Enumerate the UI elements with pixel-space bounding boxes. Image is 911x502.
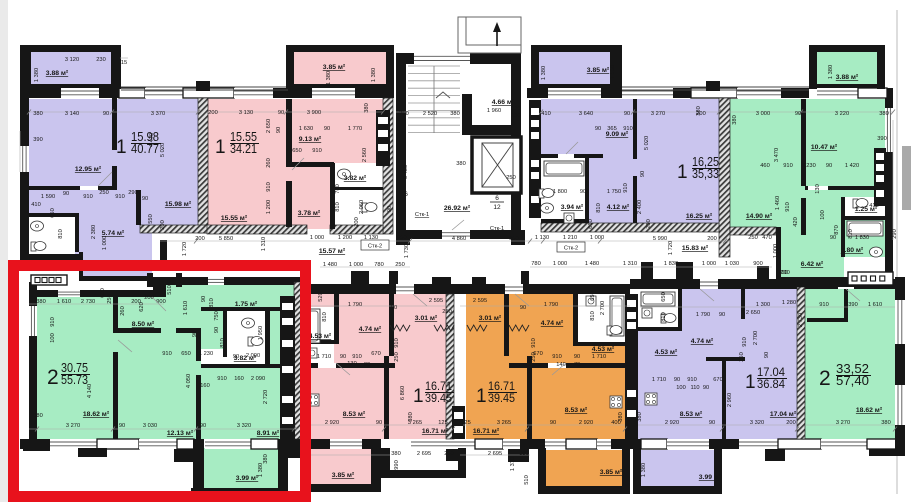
svg-text:810: 810 — [335, 202, 341, 212]
svg-text:4 470: 4 470 — [149, 133, 155, 147]
svg-text:1 830: 1 830 — [855, 235, 869, 241]
svg-text:910: 910 — [115, 194, 125, 200]
svg-text:90: 90 — [63, 191, 69, 197]
svg-text:200: 200 — [144, 295, 154, 301]
svg-text:3 640: 3 640 — [579, 111, 593, 117]
svg-text:200: 200 — [354, 217, 360, 227]
svg-text:260: 260 — [120, 306, 126, 316]
svg-text:90: 90 — [703, 385, 709, 391]
svg-text:4 140: 4 140 — [87, 384, 93, 398]
svg-text:3 470: 3 470 — [774, 148, 780, 162]
svg-text:90: 90 — [520, 305, 526, 311]
svg-text:3 900: 3 900 — [307, 110, 321, 116]
svg-text:900: 900 — [753, 261, 763, 267]
svg-text:100: 100 — [820, 210, 826, 220]
svg-text:39.45: 39.45 — [425, 391, 452, 405]
svg-text:1 950: 1 950 — [258, 326, 264, 340]
svg-text:290: 290 — [892, 229, 898, 239]
svg-text:380: 380 — [450, 111, 460, 117]
svg-text:380: 380 — [408, 412, 414, 422]
svg-text:230: 230 — [96, 57, 106, 63]
svg-text:200: 200 — [707, 236, 717, 242]
svg-text:1: 1 — [476, 386, 487, 407]
svg-text:870: 870 — [834, 225, 840, 235]
svg-text:1 480: 1 480 — [323, 262, 337, 268]
svg-text:1 380: 1 380 — [371, 68, 377, 82]
svg-text:8.91 м²: 8.91 м² — [257, 430, 280, 437]
svg-text:2 730: 2 730 — [81, 299, 95, 305]
svg-text:250: 250 — [531, 352, 537, 362]
svg-text:520: 520 — [318, 292, 324, 302]
svg-text:4.53 м²: 4.53 м² — [309, 333, 332, 340]
svg-text:750: 750 — [214, 311, 220, 321]
svg-text:5 850: 5 850 — [219, 236, 233, 242]
svg-text:1 800: 1 800 — [553, 189, 567, 195]
svg-text:3.85 м²: 3.85 м² — [600, 469, 623, 476]
svg-text:1 380: 1 380 — [641, 463, 647, 477]
svg-text:3 120: 3 120 — [65, 57, 79, 63]
svg-text:200: 200 — [160, 220, 166, 230]
svg-text:125: 125 — [461, 420, 471, 426]
svg-text:810: 810 — [209, 298, 215, 308]
svg-text:1 960: 1 960 — [487, 108, 501, 114]
svg-text:90: 90 — [826, 163, 832, 169]
svg-text:910: 910 — [623, 126, 633, 132]
svg-text:780: 780 — [531, 261, 541, 267]
svg-text:260: 260 — [266, 158, 272, 168]
svg-text:230: 230 — [806, 163, 816, 169]
svg-text:910: 910 — [687, 377, 697, 383]
svg-text:250: 250 — [397, 235, 407, 241]
svg-text:35,33: 35,33 — [692, 167, 719, 181]
svg-text:290: 290 — [128, 190, 138, 196]
svg-text:18.62 м²: 18.62 м² — [83, 411, 110, 418]
svg-text:1 130: 1 130 — [364, 235, 378, 241]
svg-text:380: 380 — [519, 451, 529, 457]
svg-text:1 000: 1 000 — [773, 244, 779, 258]
svg-text:380: 380 — [33, 111, 43, 117]
svg-text:650: 650 — [50, 208, 56, 218]
svg-text:3.01 м²: 3.01 м² — [479, 315, 502, 322]
svg-text:3.85 м²: 3.85 м² — [323, 64, 346, 71]
svg-text:90: 90 — [764, 352, 770, 358]
svg-text:18.62 м²: 18.62 м² — [856, 407, 883, 414]
svg-text:90: 90 — [103, 111, 109, 117]
svg-text:1 030: 1 030 — [725, 261, 739, 267]
svg-text:365: 365 — [607, 126, 617, 132]
svg-text:910: 910 — [83, 194, 93, 200]
svg-text:2 000: 2 000 — [246, 353, 260, 359]
svg-text:420: 420 — [793, 217, 799, 227]
svg-text:6.42 м²: 6.42 м² — [801, 261, 824, 268]
svg-text:3.94 м²: 3.94 м² — [561, 204, 584, 211]
svg-text:1 000: 1 000 — [349, 262, 363, 268]
svg-text:1 000: 1 000 — [102, 236, 108, 250]
svg-text:1 790: 1 790 — [348, 302, 362, 308]
svg-text:90: 90 — [376, 420, 382, 426]
svg-text:10.47 м²: 10.47 м² — [811, 144, 838, 151]
svg-text:2 695: 2 695 — [488, 451, 502, 457]
svg-text:3.88 м²: 3.88 м² — [836, 74, 859, 81]
svg-text:390: 390 — [848, 302, 858, 308]
svg-text:12.95 м²: 12.95 м² — [75, 166, 102, 173]
svg-text:1 300: 1 300 — [756, 302, 770, 308]
svg-text:410: 410 — [31, 202, 41, 208]
svg-text:4.53 м²: 4.53 м² — [655, 349, 678, 356]
svg-text:1 200: 1 200 — [338, 235, 352, 241]
svg-text:1 000: 1 000 — [310, 235, 324, 241]
svg-text:910: 910 — [531, 338, 537, 348]
svg-text:16.25 м²: 16.25 м² — [686, 213, 713, 220]
svg-text:650: 650 — [181, 351, 191, 357]
svg-text:650: 650 — [661, 292, 667, 302]
svg-text:9.09 м²: 9.09 м² — [606, 131, 629, 138]
svg-text:1 420: 1 420 — [845, 163, 859, 169]
svg-text:1: 1 — [413, 386, 424, 407]
svg-text:670: 670 — [713, 377, 723, 383]
svg-text:90: 90 — [278, 110, 284, 116]
svg-text:1 380: 1 380 — [828, 65, 834, 79]
svg-text:380: 380 — [881, 420, 891, 426]
svg-text:90: 90 — [719, 312, 725, 318]
svg-text:910: 910 — [819, 302, 829, 308]
svg-text:90: 90 — [550, 420, 556, 426]
svg-text:250: 250 — [395, 262, 405, 268]
svg-text:90: 90 — [192, 331, 198, 337]
svg-text:1 610: 1 610 — [868, 302, 882, 308]
svg-text:8.50 м²: 8.50 м² — [132, 321, 155, 328]
svg-text:910: 910 — [785, 202, 791, 212]
svg-text:1: 1 — [677, 162, 688, 183]
svg-text:125: 125 — [438, 420, 448, 426]
svg-text:510: 510 — [167, 285, 173, 295]
svg-text:380: 380 — [637, 412, 643, 422]
svg-text:200: 200 — [646, 219, 652, 229]
svg-text:1 710: 1 710 — [317, 354, 331, 360]
svg-text:1 590: 1 590 — [41, 194, 55, 200]
svg-text:4 050: 4 050 — [186, 374, 192, 388]
svg-text:3.85 м²: 3.85 м² — [587, 67, 610, 74]
svg-text:110: 110 — [690, 385, 699, 391]
svg-text:39.45: 39.45 — [488, 391, 515, 405]
svg-text:1 000: 1 000 — [553, 261, 567, 267]
svg-text:90: 90 — [387, 206, 393, 212]
svg-text:3 140: 3 140 — [65, 111, 79, 117]
svg-text:460: 460 — [760, 163, 770, 169]
svg-text:90: 90 — [795, 111, 801, 117]
svg-text:9.13 м²: 9.13 м² — [299, 136, 322, 143]
svg-text:1 370: 1 370 — [510, 457, 516, 471]
svg-text:600: 600 — [100, 288, 106, 298]
svg-text:200: 200 — [780, 270, 790, 276]
svg-text:910: 910 — [623, 183, 629, 193]
svg-text:3.88 м²: 3.88 м² — [46, 70, 69, 77]
svg-text:17.04 м²: 17.04 м² — [770, 411, 797, 418]
svg-text:2 380: 2 380 — [91, 225, 97, 239]
svg-text:910: 910 — [162, 351, 172, 357]
svg-text:4.12 м²: 4.12 м² — [607, 204, 630, 211]
svg-text:6 450: 6 450 — [403, 165, 409, 179]
svg-text:36.84: 36.84 — [757, 377, 785, 391]
svg-text:90: 90 — [830, 235, 836, 241]
svg-text:380: 380 — [263, 454, 269, 464]
svg-text:3 265: 3 265 — [497, 420, 511, 426]
svg-text:910: 910 — [217, 376, 227, 382]
svg-text:90: 90 — [574, 354, 580, 360]
svg-text:250: 250 — [442, 309, 452, 315]
svg-text:1 000: 1 000 — [590, 235, 604, 241]
svg-text:5 020: 5 020 — [160, 143, 166, 157]
svg-text:3 130: 3 130 — [239, 110, 253, 116]
svg-text:200: 200 — [195, 236, 205, 242]
svg-text:1 830: 1 830 — [664, 261, 678, 267]
svg-text:2 650: 2 650 — [746, 310, 760, 316]
svg-text:1 000: 1 000 — [702, 261, 716, 267]
svg-text:16.71 м²: 16.71 м² — [473, 428, 500, 435]
svg-text:2 920: 2 920 — [325, 420, 339, 426]
svg-text:1 630: 1 630 — [299, 126, 313, 132]
svg-text:57,40: 57,40 — [836, 374, 869, 388]
svg-text:380: 380 — [696, 106, 702, 116]
svg-text:380: 380 — [36, 299, 46, 305]
svg-text:90: 90 — [201, 296, 207, 302]
svg-text:910: 910 — [352, 354, 362, 360]
svg-text:2 720: 2 720 — [263, 390, 269, 404]
svg-text:1.75 м²: 1.75 м² — [235, 301, 258, 308]
svg-text:900: 900 — [156, 299, 166, 305]
svg-text:2 520: 2 520 — [423, 111, 437, 117]
svg-text:130: 130 — [347, 361, 357, 367]
svg-text:910: 910 — [394, 338, 400, 348]
svg-text:4.74 м²: 4.74 м² — [359, 326, 382, 333]
svg-text:55.73: 55.73 — [61, 373, 88, 387]
svg-text:5 020: 5 020 — [644, 136, 650, 150]
svg-text:26.92 м²: 26.92 м² — [444, 205, 471, 212]
svg-text:780: 780 — [335, 184, 341, 194]
svg-text:6 860: 6 860 — [400, 386, 406, 400]
svg-text:390: 390 — [877, 136, 887, 142]
svg-text:1 210: 1 210 — [563, 235, 577, 241]
svg-text:1 610: 1 610 — [183, 301, 189, 315]
svg-text:910: 910 — [742, 337, 748, 347]
svg-text:90: 90 — [233, 354, 239, 360]
svg-text:200: 200 — [786, 420, 796, 426]
svg-text:3 220: 3 220 — [835, 111, 849, 117]
svg-text:1 720: 1 720 — [668, 241, 674, 255]
svg-text:3.99 м²: 3.99 м² — [236, 475, 259, 482]
svg-text:130: 130 — [511, 113, 521, 119]
svg-text:1 480: 1 480 — [585, 261, 599, 267]
svg-text:380: 380 — [33, 413, 43, 419]
svg-text:1: 1 — [745, 372, 756, 393]
svg-text:160: 160 — [234, 376, 244, 382]
svg-text:2 595: 2 595 — [429, 298, 443, 304]
svg-text:5 990: 5 990 — [653, 236, 667, 242]
svg-text:6: 6 — [404, 191, 408, 198]
svg-text:200: 200 — [208, 110, 218, 116]
svg-text:650: 650 — [292, 148, 302, 154]
svg-text:1 380: 1 380 — [34, 68, 40, 82]
svg-text:250: 250 — [107, 294, 113, 304]
svg-text:2 730: 2 730 — [798, 313, 804, 327]
svg-text:1 790: 1 790 — [696, 312, 710, 318]
svg-text:90: 90 — [324, 126, 330, 132]
svg-text:380: 380 — [364, 103, 370, 113]
svg-text:4 860: 4 860 — [452, 236, 466, 242]
svg-text:810: 810 — [58, 229, 64, 239]
svg-text:160: 160 — [200, 383, 210, 389]
svg-text:15.57 м²: 15.57 м² — [319, 248, 346, 255]
svg-text:3.80 м²: 3.80 м² — [841, 247, 864, 254]
svg-text:250: 250 — [748, 235, 758, 241]
svg-text:90: 90 — [391, 305, 397, 311]
svg-text:90: 90 — [624, 111, 630, 117]
svg-text:250: 250 — [509, 236, 519, 242]
svg-text:650: 650 — [588, 219, 594, 229]
svg-text:3 000: 3 000 — [756, 111, 770, 117]
svg-text:1: 1 — [215, 137, 226, 158]
svg-text:1 130: 1 130 — [535, 235, 549, 241]
svg-text:250: 250 — [399, 111, 409, 117]
svg-text:470: 470 — [762, 235, 772, 241]
svg-text:15.98 м²: 15.98 м² — [165, 201, 192, 208]
svg-text:15.83 м²: 15.83 м² — [682, 245, 709, 252]
svg-text:1 280: 1 280 — [782, 300, 796, 306]
svg-text:100: 100 — [50, 333, 56, 343]
svg-text:1 310: 1 310 — [261, 237, 267, 251]
svg-text:910: 910 — [50, 317, 56, 327]
svg-text:250: 250 — [739, 352, 745, 362]
svg-text:3.01 м²: 3.01 м² — [415, 315, 438, 322]
svg-text:810: 810 — [661, 312, 667, 322]
svg-text:15: 15 — [121, 60, 127, 66]
svg-text:2 650: 2 650 — [266, 119, 272, 133]
svg-text:1 310: 1 310 — [623, 261, 637, 267]
svg-text:550: 550 — [148, 214, 154, 224]
svg-text:2 700: 2 700 — [753, 331, 759, 345]
svg-text:100: 100 — [676, 385, 686, 391]
svg-text:90: 90 — [200, 423, 206, 429]
svg-text:80: 80 — [364, 362, 370, 368]
svg-text:2 530: 2 530 — [633, 121, 639, 135]
svg-text:1: 1 — [116, 137, 127, 158]
svg-text:810: 810 — [322, 312, 328, 322]
svg-text:90: 90 — [595, 126, 601, 132]
svg-text:910: 910 — [552, 354, 562, 360]
svg-text:90: 90 — [709, 420, 715, 426]
svg-text:90: 90 — [640, 171, 646, 177]
svg-text:Стк-2: Стк-2 — [564, 246, 578, 252]
svg-text:1 380: 1 380 — [326, 71, 332, 85]
svg-text:3 030: 3 030 — [143, 423, 157, 429]
svg-text:910: 910 — [312, 148, 322, 154]
svg-text:130: 130 — [815, 184, 821, 194]
svg-text:410: 410 — [869, 203, 879, 209]
svg-text:Стк-1: Стк-1 — [415, 212, 429, 218]
svg-text:8.53 м²: 8.53 м² — [343, 411, 366, 418]
svg-text:250: 250 — [394, 352, 400, 362]
svg-text:380: 380 — [879, 111, 889, 117]
svg-text:15.55 м²: 15.55 м² — [221, 215, 248, 222]
svg-text:Стк-1: Стк-1 — [490, 226, 504, 232]
svg-text:990: 990 — [394, 460, 400, 470]
svg-text:1 380: 1 380 — [258, 463, 264, 477]
svg-text:810: 810 — [596, 203, 602, 213]
svg-text:1 610: 1 610 — [57, 299, 71, 305]
svg-text:390: 390 — [33, 137, 43, 143]
svg-text:3 320: 3 320 — [237, 423, 251, 429]
svg-text:3.78 м²: 3.78 м² — [298, 210, 321, 217]
svg-text:2 920: 2 920 — [665, 420, 679, 426]
svg-text:Стк-2: Стк-2 — [368, 244, 382, 250]
svg-text:1 710: 1 710 — [592, 354, 606, 360]
svg-text:90: 90 — [119, 423, 125, 429]
svg-text:910: 910 — [783, 163, 793, 169]
svg-text:250: 250 — [506, 175, 516, 181]
svg-text:2 090: 2 090 — [251, 376, 265, 382]
svg-text:16.71 м²: 16.71 м² — [422, 428, 449, 435]
svg-text:90: 90 — [340, 354, 346, 360]
svg-text:3 270: 3 270 — [651, 111, 665, 117]
svg-text:2: 2 — [47, 366, 59, 389]
svg-text:1 790: 1 790 — [544, 302, 558, 308]
svg-text:34.21: 34.21 — [230, 142, 257, 156]
svg-text:2 595: 2 595 — [473, 298, 487, 304]
svg-text:90: 90 — [142, 196, 148, 202]
svg-text:910: 910 — [266, 182, 272, 192]
svg-text:90: 90 — [214, 327, 220, 333]
svg-text:250: 250 — [99, 190, 109, 196]
svg-text:250: 250 — [444, 451, 454, 457]
svg-text:1 730: 1 730 — [404, 244, 410, 258]
svg-text:8.53 м²: 8.53 м² — [565, 407, 588, 414]
svg-text:4.74 м²: 4.74 м² — [541, 320, 564, 327]
svg-text:90: 90 — [674, 377, 680, 383]
svg-text:2 400: 2 400 — [637, 200, 643, 214]
svg-text:4.74 м²: 4.74 м² — [691, 338, 714, 345]
svg-text:4.53 м²: 4.53 м² — [592, 346, 615, 353]
svg-text:6: 6 — [495, 195, 499, 202]
svg-text:780: 780 — [374, 262, 384, 268]
svg-text:1 720: 1 720 — [182, 242, 188, 256]
svg-text:1 230: 1 230 — [199, 351, 213, 357]
svg-text:1 770: 1 770 — [348, 126, 362, 132]
svg-text:4.66 м²: 4.66 м² — [492, 99, 515, 106]
svg-text:380: 380 — [456, 161, 466, 167]
svg-text:70: 70 — [574, 362, 580, 368]
svg-text:90: 90 — [580, 189, 586, 195]
svg-text:1 460: 1 460 — [775, 196, 781, 210]
svg-text:2 560: 2 560 — [362, 148, 368, 162]
svg-text:3.82 м²: 3.82 м² — [344, 175, 367, 182]
svg-text:14.90 м²: 14.90 м² — [746, 213, 773, 220]
svg-text:12.13 м²: 12.13 м² — [167, 430, 194, 437]
svg-text:2 700: 2 700 — [600, 301, 606, 315]
svg-text:3 370: 3 370 — [151, 111, 165, 117]
svg-text:1 630: 1 630 — [610, 65, 616, 79]
svg-text:2 960: 2 960 — [727, 393, 733, 407]
svg-text:12: 12 — [493, 204, 501, 211]
svg-text:8.53 м²: 8.53 м² — [680, 411, 703, 418]
svg-text:1 750: 1 750 — [607, 189, 621, 195]
svg-text:3.99 м²: 3.99 м² — [699, 474, 722, 481]
svg-text:1 380: 1 380 — [541, 66, 547, 80]
svg-text:200: 200 — [131, 299, 141, 305]
svg-text:120: 120 — [511, 106, 521, 112]
svg-text:1 200: 1 200 — [266, 200, 272, 214]
svg-text:3 270: 3 270 — [836, 420, 850, 426]
svg-text:2 060: 2 060 — [359, 200, 365, 214]
